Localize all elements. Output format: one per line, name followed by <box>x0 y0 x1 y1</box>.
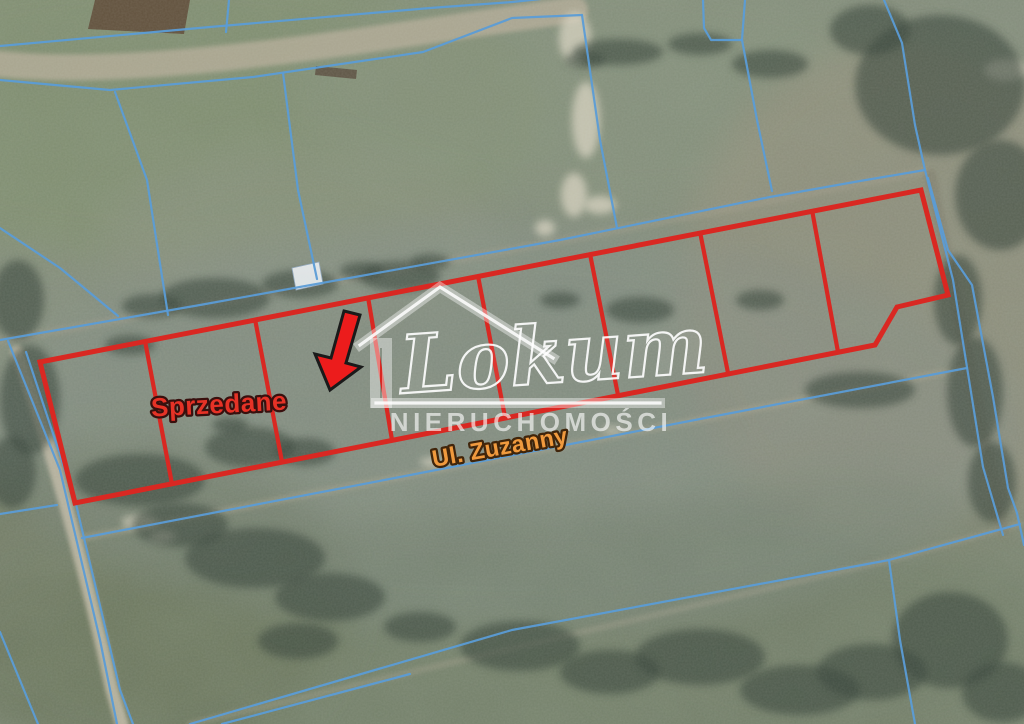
watermark: Lokum NIERUCHOMOŚCI <box>360 287 710 437</box>
aerial-parcel-map: Lokum NIERUCHOMOŚCI Sprzedane Ul. Zuzann… <box>0 0 1024 724</box>
map-canvas: Lokum NIERUCHOMOŚCI Sprzedane Ul. Zuzann… <box>0 0 1024 724</box>
